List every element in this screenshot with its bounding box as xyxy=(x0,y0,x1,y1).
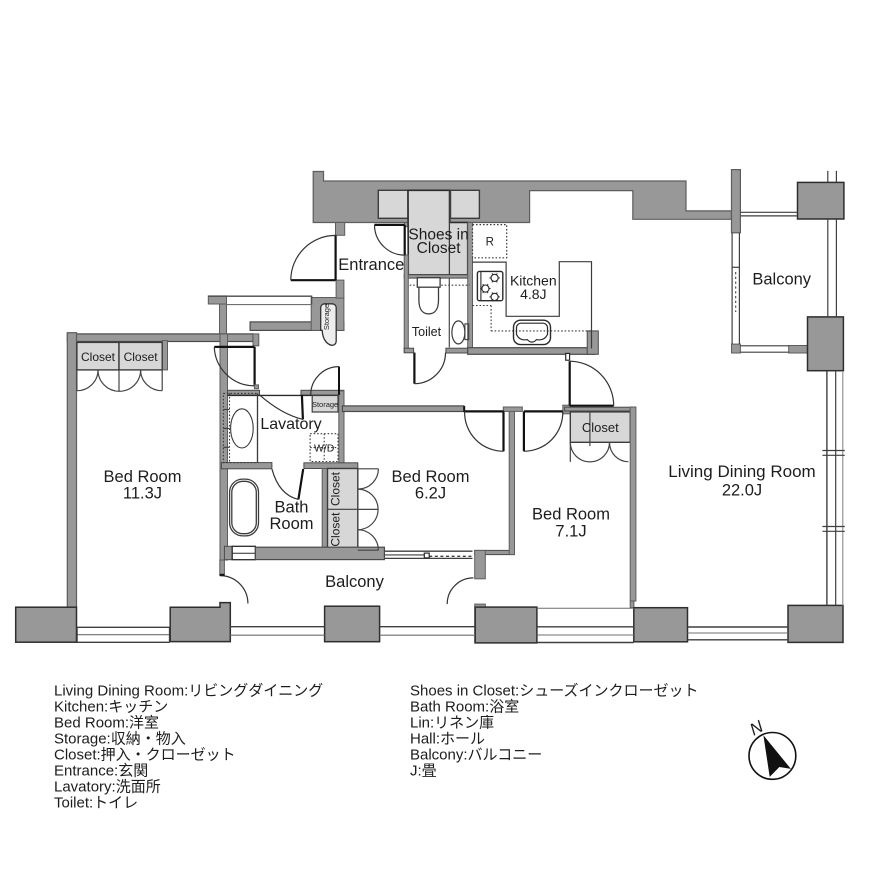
svg-text:Lin:リネン庫: Lin:リネン庫 xyxy=(410,715,494,732)
svg-text:Toilet: Toilet xyxy=(412,325,442,339)
svg-text:Living Dining Room:リビングダイニング: Living Dining Room:リビングダイニング xyxy=(54,683,323,700)
svg-text:Bed Room: Bed Room xyxy=(532,506,610,524)
svg-text:Closet: Closet xyxy=(124,350,159,364)
svg-text:J:畳: J:畳 xyxy=(410,763,437,780)
svg-text:Balcony: Balcony xyxy=(752,271,811,289)
svg-text:Closet: Closet xyxy=(417,240,462,257)
svg-text:22.0J: 22.0J xyxy=(722,481,762,499)
svg-text:Lavatory: Lavatory xyxy=(260,416,321,433)
svg-text:Closet:押入・クローゼット: Closet:押入・クローゼット xyxy=(54,747,236,764)
svg-text:Storage: Storage xyxy=(312,400,338,409)
svg-text:7.1J: 7.1J xyxy=(555,522,586,540)
svg-text:Balcony: Balcony xyxy=(325,573,384,591)
svg-text:Hall:ホール: Hall:ホール xyxy=(410,731,485,748)
svg-text:Bath Room:浴室: Bath Room:浴室 xyxy=(410,699,519,716)
svg-text:6.2J: 6.2J xyxy=(415,485,446,503)
svg-text:Living Dining Room: Living Dining Room xyxy=(668,462,815,481)
svg-text:Kitchen:キッチン: Kitchen:キッチン xyxy=(54,699,168,716)
svg-text:Storage:収納・物入: Storage:収納・物入 xyxy=(54,731,186,748)
svg-text:Toilet:トイレ: Toilet:トイレ xyxy=(54,795,138,812)
svg-text:Balcony:バルコニー: Balcony:バルコニー xyxy=(410,747,542,764)
svg-text:Room: Room xyxy=(269,515,313,533)
svg-text:Bed Room: Bed Room xyxy=(104,468,182,486)
svg-text:Closet: Closet xyxy=(582,420,619,435)
svg-text:Bath: Bath xyxy=(275,499,309,517)
svg-text:Lavatory:洗面所: Lavatory:洗面所 xyxy=(54,779,161,796)
svg-text:W/D: W/D xyxy=(314,443,335,455)
svg-text:Closet: Closet xyxy=(329,512,343,547)
svg-text:Storage: Storage xyxy=(322,304,331,330)
svg-text:Bed Room:洋室: Bed Room:洋室 xyxy=(54,715,159,732)
svg-text:11.3J: 11.3J xyxy=(123,485,162,503)
svg-text:Closet: Closet xyxy=(329,471,343,506)
svg-text:Closet: Closet xyxy=(81,350,116,364)
svg-text:Bed Room: Bed Room xyxy=(392,468,470,486)
svg-text:4.8J: 4.8J xyxy=(520,286,546,302)
svg-text:R: R xyxy=(486,237,494,249)
svg-text:Entrance: Entrance xyxy=(338,256,404,274)
svg-text:Shoes in Closet:シューズインクローゼット: Shoes in Closet:シューズインクローゼット xyxy=(410,683,698,700)
svg-text:Entrance:玄関: Entrance:玄関 xyxy=(54,763,148,780)
